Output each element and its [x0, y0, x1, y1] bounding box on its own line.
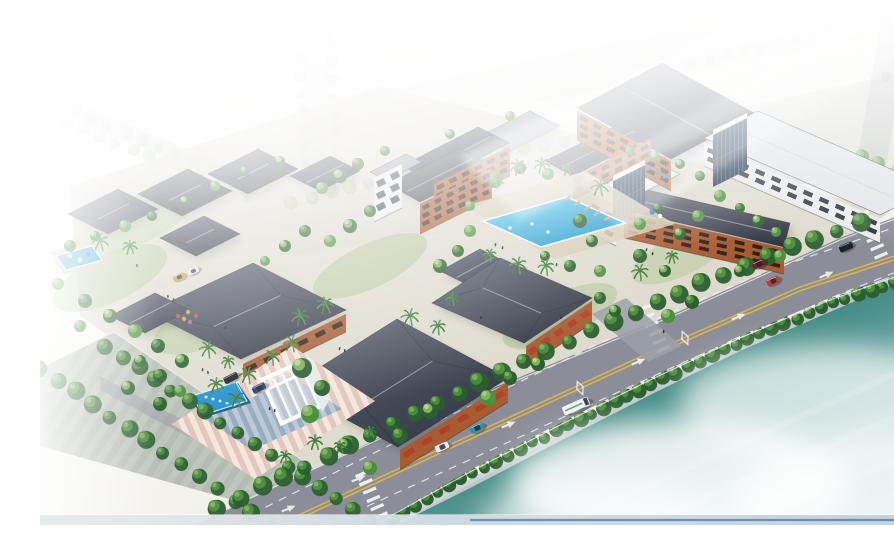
bottom-strip: [40, 515, 894, 526]
haze-overlays: [40, 16, 894, 525]
architectural-rendering: [40, 16, 894, 525]
